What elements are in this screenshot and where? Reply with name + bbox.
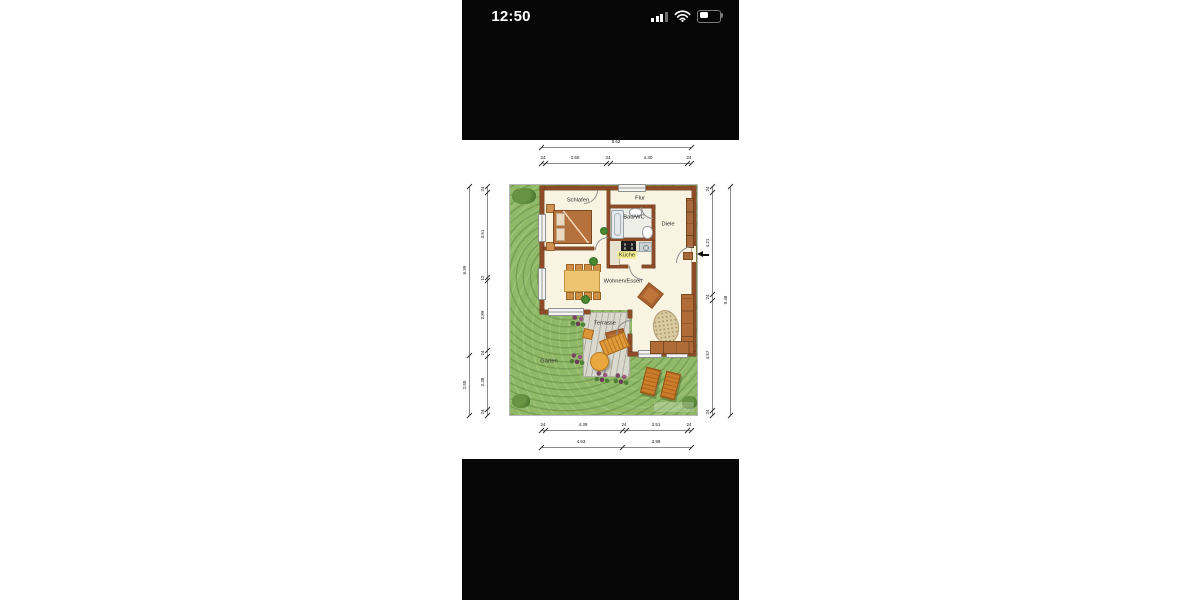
window-living-left — [538, 268, 546, 300]
wardrobe — [686, 198, 694, 248]
window-bedroom-left — [538, 214, 546, 242]
room-label-garten: Garten — [540, 358, 557, 364]
room-label-schlafen: Schlafen — [567, 197, 589, 203]
kitchen-sink — [639, 242, 652, 252]
dim-line-right-outer — [730, 186, 731, 415]
dim-tick — [688, 445, 694, 451]
plant — [589, 257, 598, 266]
battery-nub — [721, 13, 723, 18]
dim-label: 3.51 — [481, 230, 486, 239]
toilet — [642, 226, 653, 239]
wifi-icon — [674, 10, 691, 22]
dim-tick — [688, 145, 694, 151]
status-time: 12:50 — [481, 8, 541, 25]
room-label-kueche: Küche — [617, 251, 636, 258]
stove — [621, 241, 636, 251]
dim-label: 24 — [481, 186, 486, 191]
dim-label: 4.63 — [577, 440, 586, 445]
wall-kueche-right — [652, 241, 655, 268]
dim-label: 24 — [540, 156, 545, 161]
wall-kueche-bottom-left — [610, 265, 628, 268]
room-label-diele: Diele — [661, 221, 674, 227]
watermark-patch — [654, 402, 694, 412]
bathtub — [611, 210, 624, 239]
plant — [600, 227, 608, 235]
room-label-flur: Flur — [635, 195, 645, 201]
dim-label: 24 — [605, 156, 610, 161]
dim-label: 3.99 — [652, 440, 661, 445]
dining-chair — [593, 292, 601, 300]
dim-line-left-outer — [469, 186, 470, 415]
dim-label: 24 — [706, 409, 711, 414]
entrance-arrow-tail — [703, 254, 709, 256]
flower-bush — [594, 369, 610, 384]
dim-label: 9.48 — [724, 296, 729, 305]
bush — [512, 394, 530, 408]
dim-label: 12 — [481, 275, 486, 280]
dim-line-bottom-totals — [541, 447, 691, 448]
bed — [553, 210, 592, 244]
dim-label: 4.21 — [706, 239, 711, 248]
flower-bush — [569, 351, 585, 366]
dim-label: 3.51 — [652, 423, 661, 428]
flower-bush — [570, 313, 586, 328]
plant — [581, 295, 590, 304]
dim-label: 2.38 — [481, 378, 486, 387]
room-label-bad: Bad/WC — [623, 214, 644, 220]
battery-icon — [697, 10, 721, 23]
dim-tick — [727, 413, 733, 419]
dim-label: 4.40 — [644, 156, 653, 161]
dim-label: 4.57 — [706, 351, 711, 360]
dim-label: 8.62 — [612, 140, 621, 145]
dim-line-top-segments — [541, 163, 691, 164]
screenshot-canvas: 12:50 — [0, 0, 1200, 600]
wall-wing-left-upper — [628, 310, 632, 318]
dim-label: 24 — [686, 423, 691, 428]
dining-table — [564, 270, 600, 292]
dim-label: 2.89 — [481, 311, 486, 320]
dim-line-bottom-segments — [541, 430, 691, 431]
dim-line-left-inner — [487, 186, 488, 415]
dim-label: 2.50 — [463, 381, 468, 390]
dining-chair — [566, 292, 574, 300]
bush — [512, 188, 536, 204]
sofa-horizontal — [650, 341, 694, 354]
room-label-wohnen: Wohnen/Essen — [604, 278, 643, 284]
window-flur-top — [618, 184, 646, 192]
wall-kueche-bottom-right — [642, 265, 655, 268]
dim-label: 24 — [540, 423, 545, 428]
dim-label: 24 — [706, 186, 711, 191]
dim-label: 24 — [481, 409, 486, 414]
top-letterbox-bar: 12:50 — [462, 0, 739, 140]
bottom-letterbox-bar — [462, 459, 739, 600]
dim-label: 4.39 — [579, 423, 588, 428]
dim-label: 24 — [686, 156, 691, 161]
dim-label: 24 — [621, 423, 626, 428]
dim-tick — [466, 413, 472, 419]
room-label-terrasse: Terrasse — [594, 320, 616, 326]
flower-bush — [613, 371, 629, 386]
dim-label: 24 — [706, 294, 711, 299]
dim-label: 24 — [481, 350, 486, 355]
dim-label: 6.99 — [463, 266, 468, 275]
dim-label: 3.50 — [571, 156, 580, 161]
dim-line-top-total — [541, 147, 691, 148]
